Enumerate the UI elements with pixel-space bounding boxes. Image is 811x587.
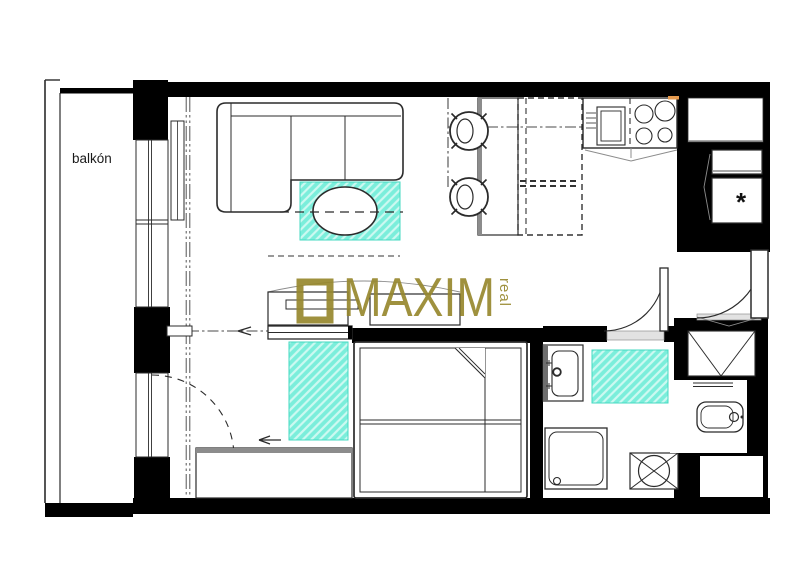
wall-partition-bedroom: [352, 328, 530, 343]
brand-watermark: MAXIM real: [300, 266, 513, 328]
kitchen: [518, 96, 679, 235]
appliance-mark: *: [736, 187, 747, 217]
appliance-nook: *: [704, 150, 762, 223]
wall-bathroom-left: [530, 328, 543, 512]
dining-chair: [450, 178, 488, 216]
floor-plan-canvas: balkón: [0, 0, 811, 587]
bedroom-rug: [289, 342, 348, 440]
bathroom-rug: [592, 350, 668, 403]
curtain-track: [186, 97, 190, 497]
cooktop-accent-mark: [668, 96, 679, 100]
floor-plan-page: balkón: [0, 0, 811, 587]
wall-top: [133, 82, 770, 97]
bathroom-door-swing-arc: [604, 271, 664, 331]
wall-left-mid-block: [134, 307, 170, 373]
brand-suffix: real: [496, 278, 513, 307]
balcony-door: [136, 373, 168, 457]
bathroom-door-leaf: [660, 268, 668, 331]
wardrobe: [196, 436, 352, 498]
dining-chair: [450, 112, 488, 150]
washbasin: [543, 345, 583, 401]
double-bed: [354, 342, 527, 498]
shower: [545, 428, 607, 489]
balcony-bottom-wall: [45, 503, 133, 517]
hall-closet: [688, 331, 755, 376]
door-pocket: [167, 326, 192, 336]
living-room: [217, 103, 403, 256]
washing-machine: [630, 453, 678, 489]
brand-name: MAXIM: [343, 266, 495, 328]
shaft-niche: [700, 456, 763, 497]
toilet-niche: [670, 380, 747, 453]
toilet: [697, 402, 744, 432]
wall-bathroom-top: [543, 326, 607, 342]
sliding-partition-door: [167, 326, 352, 339]
window-living: [136, 140, 168, 307]
bathroom-threshold: [607, 331, 664, 340]
kitchen-cabinet-column: [518, 98, 582, 235]
top-right-window: [688, 98, 763, 142]
entrance-door-leaf: [751, 250, 768, 318]
balcony: balkón: [45, 80, 133, 517]
balcony-label: balkón: [72, 151, 112, 166]
coffee-table: [313, 187, 377, 235]
balcony-top-wall: [60, 88, 133, 94]
